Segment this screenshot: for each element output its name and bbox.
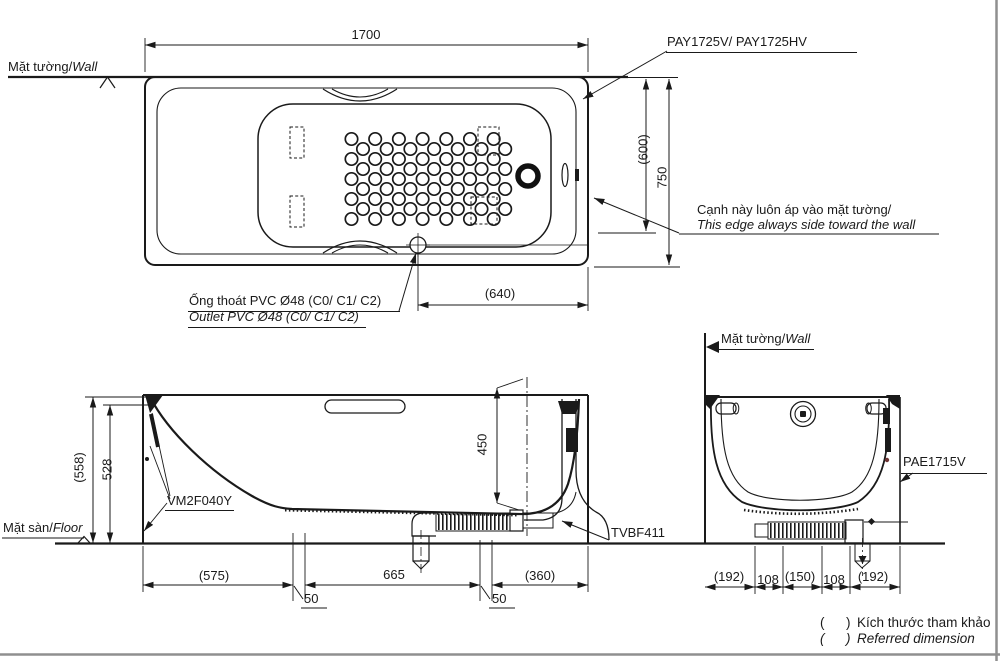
dim-height-ref: (558) [73,438,88,498]
model-leader-line [583,51,667,99]
panel-leader-line [900,473,913,482]
outlet-note-vi: Ống thoát PVC Ø48 (C0/ C1/ C2) [189,294,381,308]
edge-note-vi: Cạnh này luôn áp vào mặt tường/ [697,203,891,217]
legend-note-vi: Kích thước tham khảo [857,616,990,631]
end-view-linework [705,333,908,576]
end-view-piping [755,518,908,576]
jet-fitting-icon [791,402,816,427]
dim-drain-offset: (640) [470,287,530,301]
overflow-section [883,408,891,462]
dim-bottom: 665 [364,568,424,582]
edge-note-en: This edge always side toward the wall [697,218,915,232]
dim-width-ref: (600) [637,120,652,180]
dim-192-right: (192) [843,570,903,584]
floor-label: Mặt sàn/Floor [3,521,82,535]
outlet-leader-line [399,253,416,311]
outlet-icon [406,233,587,257]
part-panel-label: PAE1715V [903,455,966,469]
waste-leader-line [562,521,609,540]
waste-piping [412,399,609,574]
dim-depth: 450 [476,415,491,475]
wall-label-end: Mặt tường/Wall [721,332,810,346]
dim-head: (575) [184,569,244,583]
legend-paren-close-2: ) [846,632,851,647]
grip-slot [325,400,405,413]
top-view-linework [8,77,628,265]
dim-width: 750 [656,148,671,208]
outlet-note-en: Outlet PVC Ø48 (C0/ C1/ C2) [189,310,359,324]
anti-slip-pattern [345,133,511,225]
legend-paren-close-1: ) [846,616,851,631]
wall-label-top: Mặt tường/Wall [8,60,97,74]
legend-paren-open-2: ( [820,632,825,647]
hidden-fixture-outlines [290,127,499,227]
dim-gap-left: 50 [304,592,318,606]
dim-length: 1700 [336,28,396,42]
legend-paren-open-1: ( [820,616,825,631]
top-view-dimensions [145,38,939,328]
drawing-linework [0,0,1000,661]
dim-gap-right: 50 [492,592,506,606]
model-label: PAY1725V/ PAY1725HV [667,35,807,49]
dim-foot: (360) [510,569,570,583]
dim-height-rim: 528 [101,440,116,500]
wall-hatch-icon [100,77,115,88]
wall-arrow-icon [706,341,719,353]
legend-note-en: Referred dimension [857,632,975,647]
spec-drawing-sheet: Mặt tường/Wall PAY1725V/ PAY1725HV 1700 … [0,0,1000,661]
part-waste-label: TVBF411 [611,526,665,540]
drain-icon [518,166,538,186]
part-bracket-label: VM2F040Y [167,494,232,508]
